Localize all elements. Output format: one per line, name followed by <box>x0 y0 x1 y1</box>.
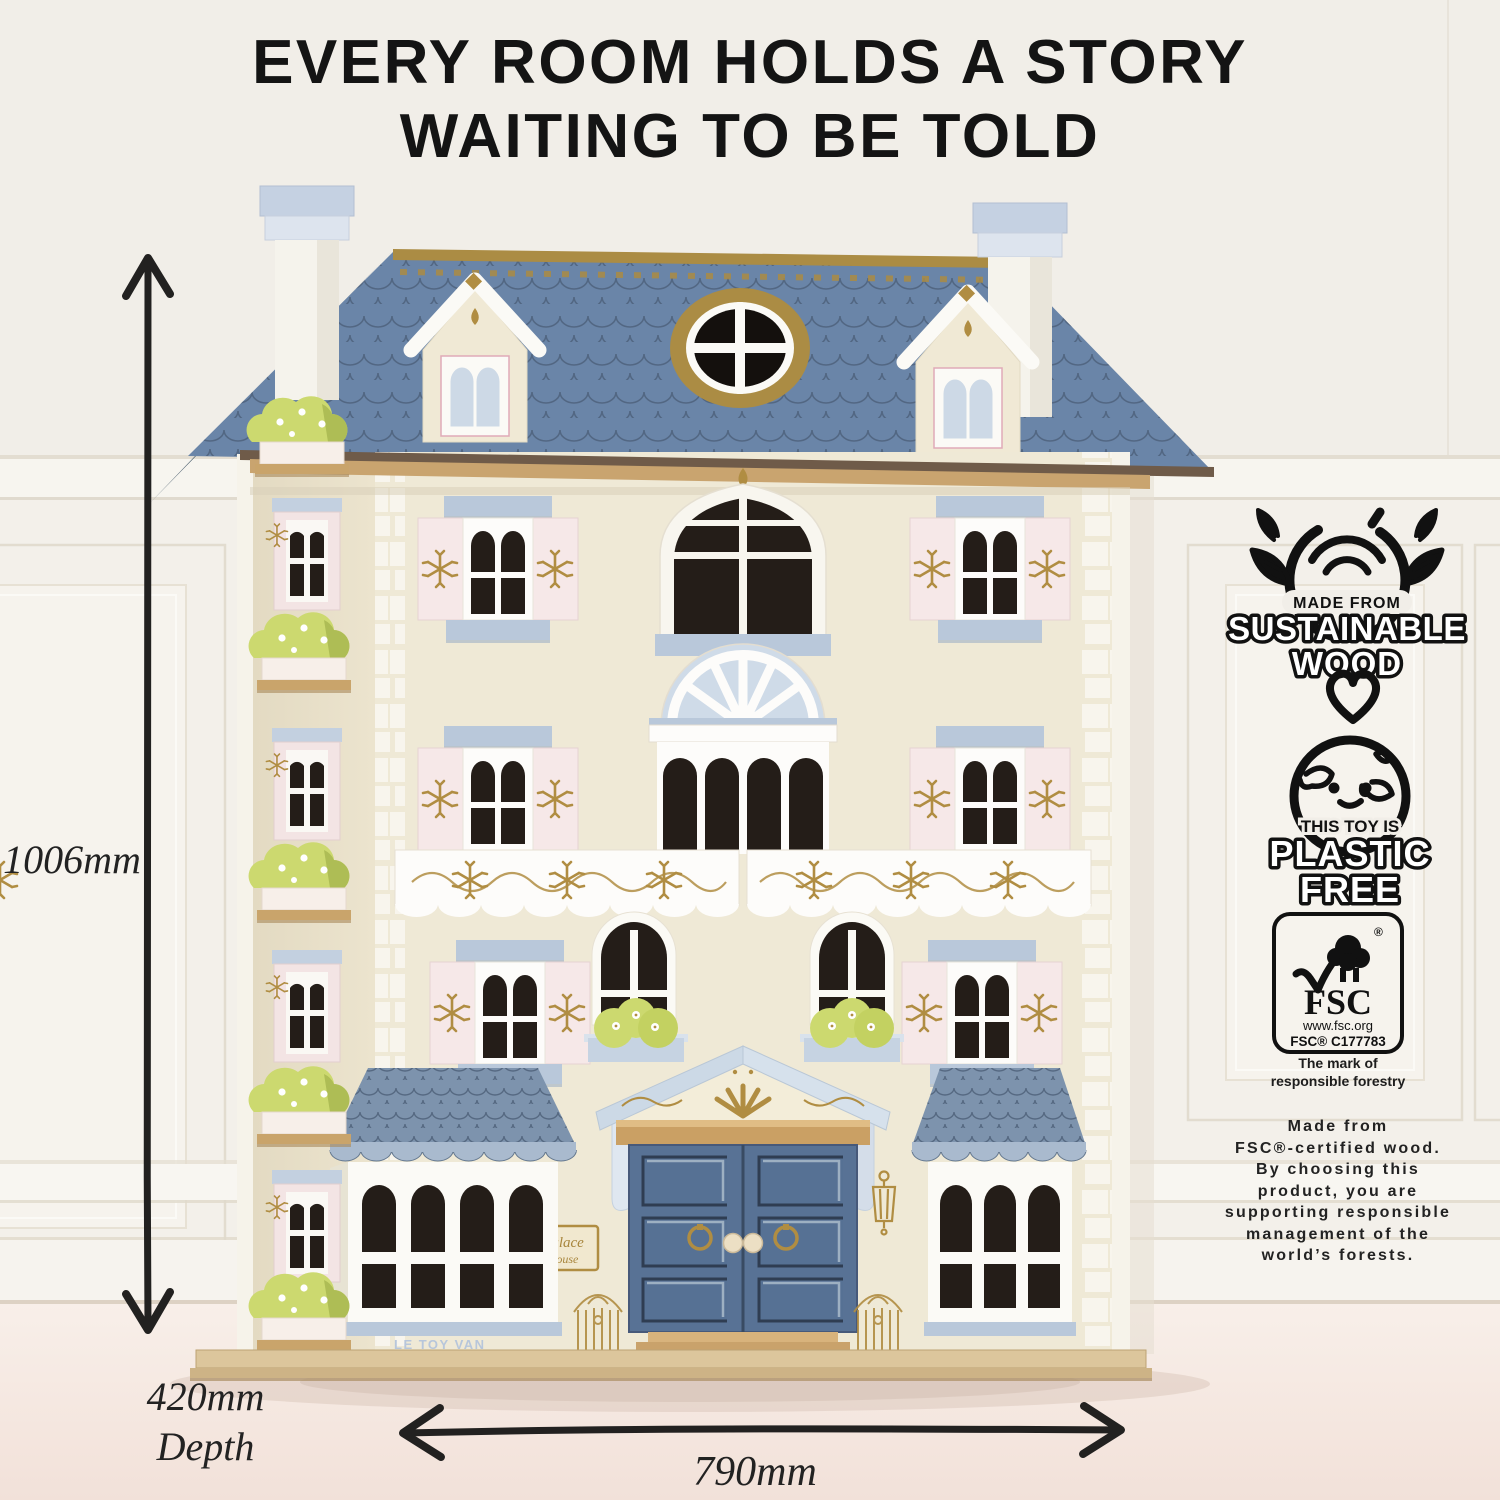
width-dimension-label: 790mm <box>665 1448 845 1496</box>
fsc-license: FSC® C177783 <box>1290 1034 1386 1049</box>
headline: EVERY ROOM HOLDS A STORY WAITING TO BE T… <box>0 26 1500 174</box>
side-window <box>266 498 342 610</box>
free-label: FREE <box>1300 869 1400 910</box>
depth-dimension-label: 420mm Depth <box>108 1372 303 1472</box>
headline-line-1: EVERY ROOM HOLDS A STORY <box>0 26 1500 100</box>
bay-window-left <box>330 1068 576 1336</box>
sustainable-wood-badge: MADE FROM SUSTAINABLE WOOD <box>1222 488 1472 688</box>
registered-mark: ® <box>1374 925 1383 939</box>
door-knob-right <box>744 1234 763 1253</box>
description-text: Made from FSC®-certified wood. By choosi… <box>1196 1116 1480 1267</box>
door-step <box>648 1332 838 1342</box>
fsc-tree-icon: ® <box>1296 925 1383 990</box>
front-door <box>629 1145 857 1332</box>
fsc-tagline: The mark of responsible forestry <box>1248 1054 1428 1090</box>
sustainable-label: SUSTAINABLE <box>1228 610 1466 647</box>
fsc-url: www.fsc.org <box>1302 1018 1373 1033</box>
headline-line-2: WAITING TO BE TOLD <box>0 100 1500 174</box>
wooden-base <box>190 1350 1152 1381</box>
fsc-acronym: FSC <box>1304 982 1372 1022</box>
side-window <box>266 728 342 840</box>
plastic-free-badge: THIS TOY IS PLASTIC FREE <box>1250 716 1450 912</box>
entrance <box>596 1046 890 1354</box>
round-attic-window <box>670 288 810 408</box>
side-window <box>266 950 342 1062</box>
height-dimension-label: 1006mm <box>2 836 142 883</box>
side-window <box>266 1170 342 1282</box>
plastic-label: PLASTIC <box>1269 833 1430 874</box>
door-knob-left <box>724 1234 743 1253</box>
bay-window-right <box>912 1068 1086 1336</box>
fsc-badge: ® FSC www.fsc.org FSC® C177783 <box>1268 910 1408 1056</box>
